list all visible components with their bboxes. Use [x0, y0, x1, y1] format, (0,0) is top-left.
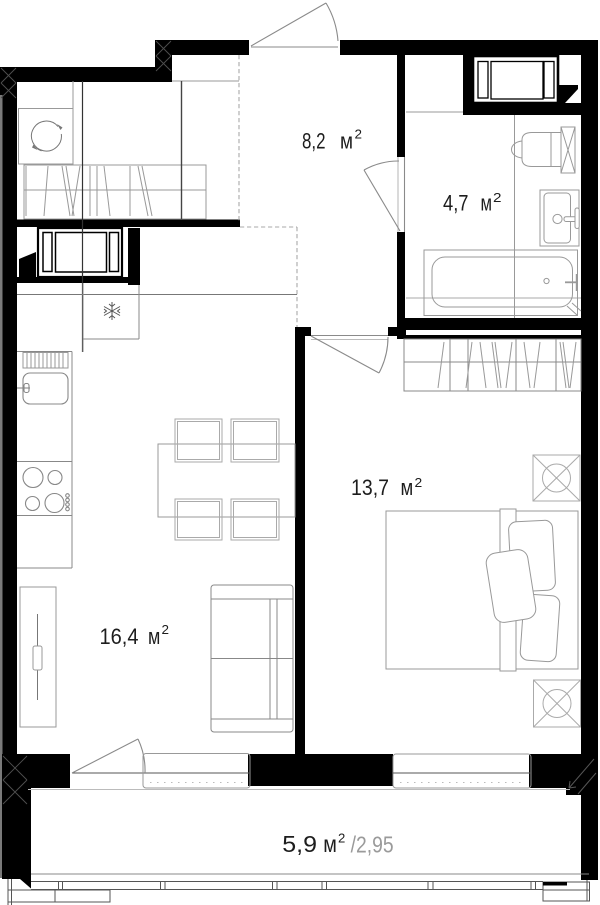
svg-text:м: м [481, 191, 493, 216]
svg-text:13,7: 13,7 [351, 475, 389, 500]
svg-text:м: м [340, 129, 353, 154]
svg-text:8,2: 8,2 [302, 129, 326, 154]
svg-text:м: м [401, 475, 414, 500]
svg-text:2: 2 [355, 127, 363, 142]
svg-text:2: 2 [162, 622, 170, 637]
svg-text:2: 2 [415, 475, 423, 490]
svg-text:16,4: 16,4 [100, 624, 139, 649]
svg-text:/2,95: /2,95 [351, 832, 394, 858]
svg-text:м: м [323, 831, 337, 857]
svg-text:2: 2 [493, 190, 502, 205]
svg-text:м: м [148, 624, 160, 649]
svg-text:4,7: 4,7 [443, 191, 469, 216]
svg-text:2: 2 [338, 831, 345, 846]
svg-text:5,9: 5,9 [282, 831, 317, 857]
